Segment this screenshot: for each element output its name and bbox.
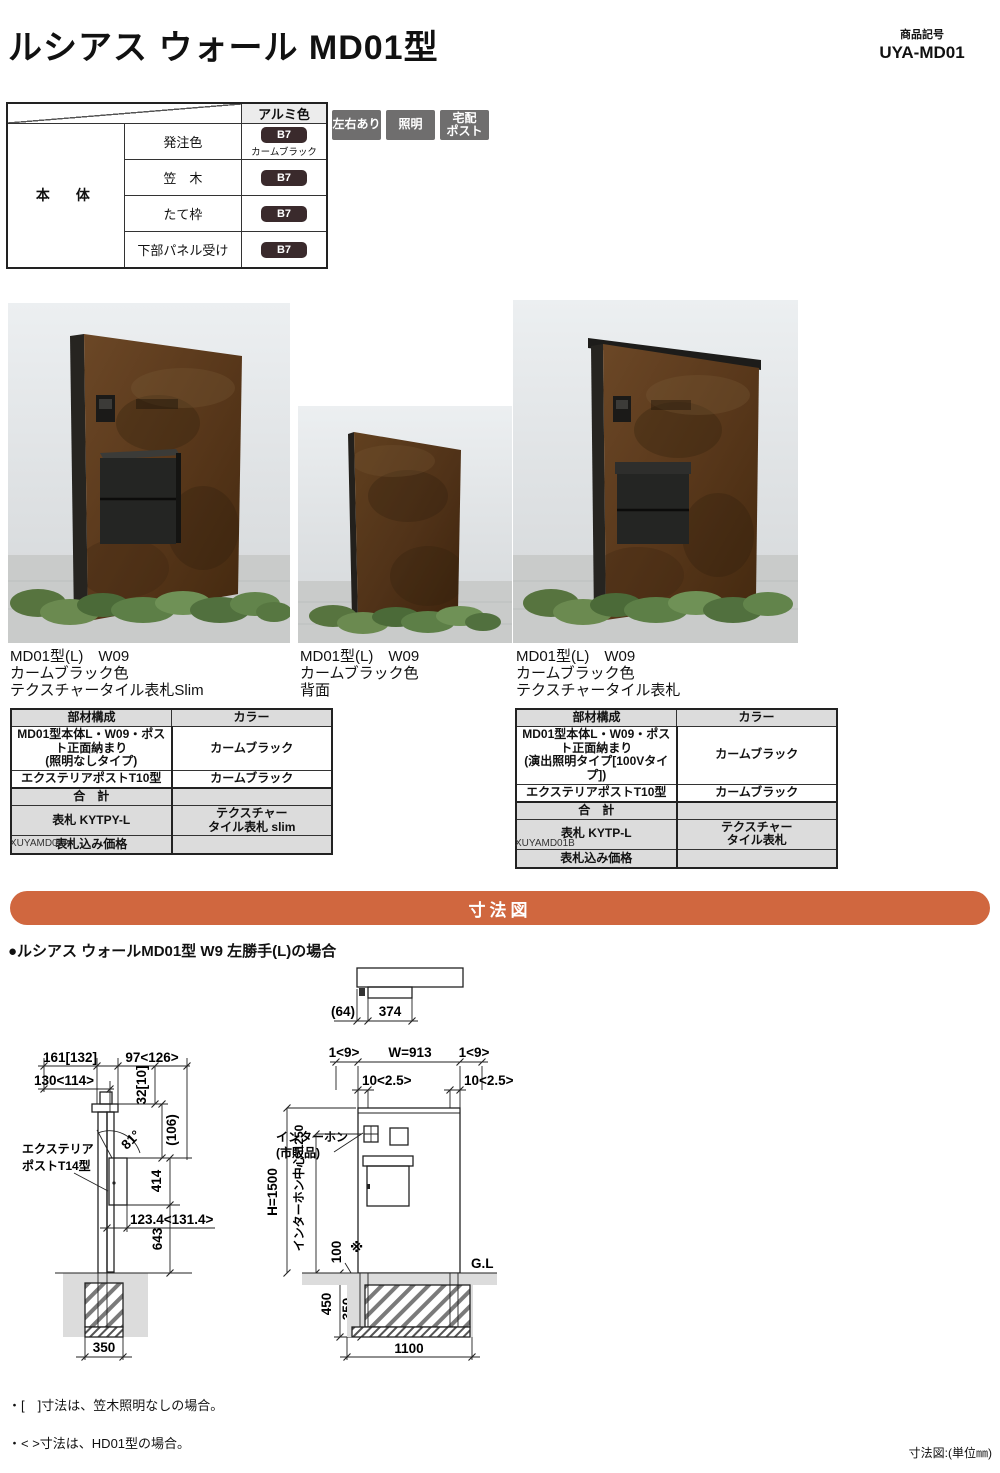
- feature-badge-delivery-post: 宅配 ポスト: [440, 110, 489, 140]
- dim-10-right: 10<2.5>: [464, 1073, 514, 1088]
- parts-header: カラー: [677, 709, 838, 726]
- dim-130: 130<114>: [34, 1073, 94, 1088]
- color-row-label: 下部パネル受け: [124, 232, 241, 268]
- section-banner: 寸法図: [10, 891, 990, 925]
- parts-color: カームブラック: [172, 726, 333, 770]
- exterior-post-label-1: エクステリア: [22, 1142, 94, 1156]
- side-view: 161[132] 97<126> 130<114> 32[10] (106) 8…: [22, 1050, 215, 1361]
- dimension-diagram: (64) 374 161[132] 97<126> 130<114> 32[10…: [0, 955, 700, 1370]
- color-row-label: 発注色: [124, 124, 241, 160]
- parts-color: テクスチャー タイル表札: [677, 819, 838, 850]
- color-row-label: たて枠: [124, 196, 241, 232]
- parts-color: カームブラック: [677, 784, 838, 801]
- unit-note: 寸法図:(単位㎜): [697, 1444, 992, 1461]
- dim-1250: インターホン中心:1250: [291, 1124, 306, 1251]
- parts-name: 表札 KYTPY-L: [11, 805, 172, 836]
- dim-450: 450: [319, 1293, 334, 1316]
- parts-total-label: 合 計: [11, 788, 172, 805]
- dim-1-9-right: 1<9>: [459, 1045, 490, 1060]
- parts-total-label: 合 計: [516, 802, 677, 819]
- parts-header: 部材構成: [516, 709, 677, 726]
- parts-name: 表札込み価格: [516, 850, 677, 868]
- catalog-page: ルシアス ウォール MD01型 商品記号 UYA-MD01 アルミ色 本 体 発…: [0, 0, 1000, 1473]
- photo-caption-3: MD01型(L) W09 カームブラック色 テクスチャータイル表札: [516, 648, 680, 699]
- feature-badge-both-hands: 左右あり: [332, 110, 381, 140]
- nameplate: [651, 400, 691, 410]
- dim-414: 414: [149, 1169, 164, 1192]
- color-spec-table: アルミ色 本 体 発注色 B7 カームブラック 笠 木 B7 たて枠 B7 下部…: [6, 102, 328, 269]
- diagonal-header-cell: [7, 103, 242, 124]
- product-photo-front-render: [513, 300, 798, 643]
- dim-64: (64): [331, 1004, 355, 1019]
- section-banner-label: 寸法図: [469, 896, 532, 921]
- parts-name: MD01型本体L・W09・ポスト正面納まり (演出照明タイプ[100Vタイプ]): [516, 726, 677, 784]
- dim-106: (106): [164, 1114, 179, 1146]
- parts-name: MD01型本体L・W09・ポスト正面納まり (照明なしタイプ): [11, 726, 172, 770]
- plan-view: (64) 374: [331, 968, 463, 1025]
- color-row-label: 笠 木: [124, 160, 241, 196]
- color-badge: B7: [261, 170, 307, 186]
- photo-caption-1: MD01型(L) W09 カームブラック色 テクスチャータイル表札Slim: [10, 648, 204, 699]
- color-row-value: B7 カームブラック: [242, 124, 328, 160]
- product-photo-back: [298, 406, 512, 643]
- color-row-value: B7: [242, 232, 328, 268]
- dim-161: 161[132]: [43, 1050, 97, 1065]
- parts-color: テクスチャー タイル表札 slim: [172, 805, 333, 836]
- color-badge-note: カームブラック: [242, 144, 326, 158]
- exterior-post-label-2: ポストT14型: [22, 1158, 91, 1173]
- dim-1-9-left: 1<9>: [329, 1045, 360, 1060]
- dim-123: 123.4<131.4>: [130, 1212, 213, 1227]
- dim-100: 100: [329, 1241, 344, 1264]
- footnotes: ・[ ]寸法は、笠木照明なしの場合。 ・< >寸法は、HD01型の場合。 ・※印…: [8, 1377, 530, 1473]
- parts-name: エクステリアポストT10型: [11, 771, 172, 788]
- front-view: 1<9> W=913 1<9> 10<2.5> 10<2.5> インターホン (…: [265, 1045, 514, 1361]
- parts-name: エクステリアポストT10型: [516, 784, 677, 801]
- color-badge: B7: [261, 242, 307, 258]
- dim-374: 374: [379, 1004, 402, 1019]
- parts-header: カラー: [172, 709, 333, 726]
- dim-10-left: 10<2.5>: [362, 1073, 412, 1088]
- row-group-label: 本 体: [7, 124, 124, 268]
- footnote: ・[ ]寸法は、笠木照明なしの場合。: [8, 1396, 530, 1415]
- feature-badges: 左右あり 照明 宅配 ポスト: [332, 110, 489, 140]
- product-code-block: 商品記号 UYA-MD01: [872, 26, 972, 63]
- product-code-label: 商品記号: [872, 26, 972, 42]
- product-photo-front: [513, 300, 798, 643]
- footnote: ・< >寸法は、HD01型の場合。: [8, 1434, 530, 1453]
- dim-643: 643: [150, 1227, 165, 1250]
- nameplate: [136, 399, 178, 409]
- product-photo-front-slim-render: [8, 303, 290, 643]
- parts-table-b-code: XUYAMD01B: [515, 838, 575, 849]
- color-badge: B7: [261, 206, 307, 222]
- product-photo-back-render: [298, 406, 512, 643]
- dim-angle-81: 81°: [118, 1127, 143, 1152]
- parts-header: 部材構成: [11, 709, 172, 726]
- ground-level-label: G.L: [471, 1256, 494, 1271]
- parts-color: カームブラック: [677, 726, 838, 784]
- feature-badge-lighting: 照明: [386, 110, 435, 140]
- parts-table-a-code: XUYAMD01A: [10, 838, 70, 849]
- parts-color: カームブラック: [172, 771, 333, 788]
- dim-w913: W=913: [388, 1045, 432, 1060]
- photo-caption-2: MD01型(L) W09 カームブラック色 背面: [300, 648, 419, 699]
- color-badge: B7: [261, 127, 307, 143]
- dim-h1500: H=1500: [265, 1168, 280, 1216]
- dim-97: 97<126>: [125, 1050, 178, 1065]
- dim-32: 32[10]: [134, 1065, 149, 1104]
- mailbox: [100, 458, 176, 544]
- parts-table-a: 部材構成 カラー MD01型本体L・W09・ポスト正面納まり (照明なしタイプ)…: [10, 708, 333, 855]
- dim-350-side: 350: [93, 1340, 116, 1355]
- dim-1100: 1100: [394, 1341, 423, 1356]
- page-title: ルシアス ウォール MD01型: [8, 20, 439, 69]
- product-photo-front-slim: [8, 303, 290, 643]
- product-code: UYA-MD01: [872, 43, 972, 63]
- color-row-value: B7: [242, 196, 328, 232]
- asterisk-mark: ※: [350, 1240, 363, 1255]
- color-column-header: アルミ色: [242, 103, 328, 124]
- color-row-value: B7: [242, 160, 328, 196]
